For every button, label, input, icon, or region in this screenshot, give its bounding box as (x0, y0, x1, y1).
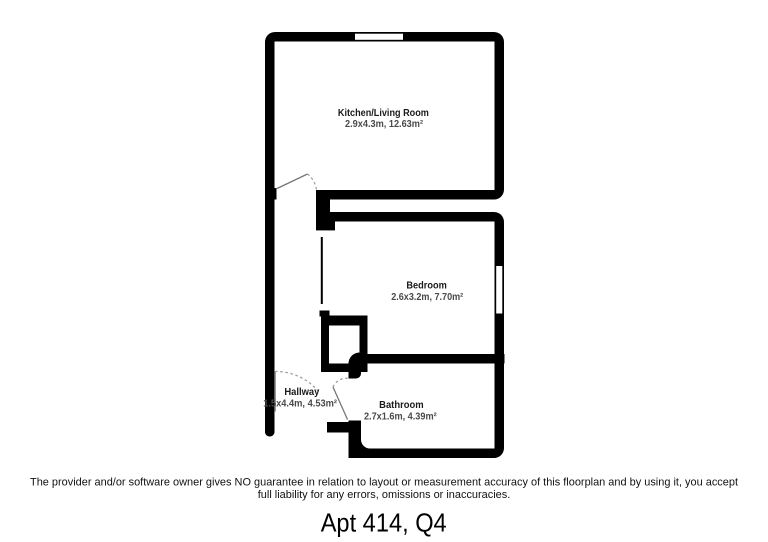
svg-text:1.5x4.4m, 4.53m²: 1.5x4.4m, 4.53m² (263, 398, 337, 409)
svg-text:full liability for any errors,: full liability for any errors, omissions… (258, 489, 511, 501)
svg-text:Apt 414, Q4: Apt 414, Q4 (321, 507, 447, 537)
svg-text:The provider and/or software o: The provider and/or software owner gives… (30, 477, 738, 489)
svg-text:2.7x1.6m, 4.39m²: 2.7x1.6m, 4.39m² (364, 412, 437, 423)
svg-text:2.9x4.3m, 12.63m²: 2.9x4.3m, 12.63m² (345, 119, 423, 130)
svg-text:Bedroom: Bedroom (406, 281, 446, 292)
svg-text:Hallway: Hallway (284, 387, 319, 398)
svg-text:Kitchen/Living Room: Kitchen/Living Room (338, 108, 429, 119)
svg-text:Bathroom: Bathroom (379, 400, 424, 411)
svg-text:2.6x3.2m, 7.70m²: 2.6x3.2m, 7.70m² (391, 292, 463, 303)
